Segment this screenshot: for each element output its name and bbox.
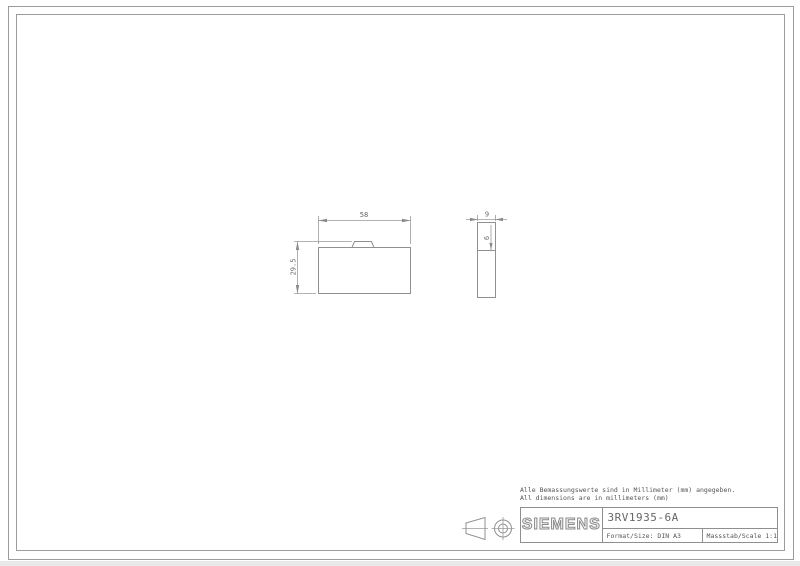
page-bottom-edge bbox=[0, 561, 800, 566]
side-step-dimension: 6 bbox=[483, 225, 493, 250]
title-block: SIEMENS 3RV1935-6A Format/Size: DIN A3 M… bbox=[520, 507, 778, 543]
outer-border-frame bbox=[9, 7, 794, 560]
part-number: 3RV1935-6A bbox=[603, 508, 777, 529]
circle-centerlines bbox=[492, 517, 515, 540]
front-height-dim-text: 29.5 bbox=[290, 259, 298, 276]
arrowhead-bottom bbox=[489, 243, 492, 250]
note-line-german: Alle Bemassungswerte sind in Millimeter … bbox=[520, 486, 735, 494]
front-view-tab-outline bbox=[352, 242, 374, 248]
arrowhead-left bbox=[319, 219, 328, 222]
side-width-dim-text: 9 bbox=[485, 211, 489, 219]
arrowhead-bottom bbox=[296, 285, 299, 294]
arrowhead-top bbox=[296, 242, 299, 251]
drawing-sheet: 58 29.5 9 6 bbox=[0, 0, 800, 566]
note-line-english: All dimensions are in millimeters (mm) bbox=[520, 494, 735, 502]
arrowhead-right bbox=[496, 218, 504, 221]
side-width-dimension: 9 bbox=[466, 211, 507, 222]
front-view bbox=[319, 242, 411, 294]
dimension-notes: Alle Bemassungswerte sind in Millimeter … bbox=[520, 486, 735, 502]
extension-lines bbox=[294, 242, 352, 294]
arrowhead-left bbox=[470, 218, 478, 221]
front-height-dimension: 29.5 bbox=[290, 242, 353, 294]
front-width-dim-text: 58 bbox=[360, 211, 368, 219]
scale-label: Massstab/Scale 1:1 bbox=[703, 529, 777, 542]
first-angle-projection-icon bbox=[462, 517, 515, 540]
side-view bbox=[478, 223, 496, 298]
format-size-label: Format/Size: DIN A3 bbox=[603, 529, 703, 542]
side-view-outline bbox=[478, 223, 496, 298]
front-width-dimension: 58 bbox=[319, 211, 411, 244]
title-block-right: 3RV1935-6A Format/Size: DIN A3 Massstab/… bbox=[603, 508, 777, 542]
title-block-bottom-row: Format/Size: DIN A3 Massstab/Scale 1:1 bbox=[603, 529, 777, 542]
side-step-dim-text: 6 bbox=[483, 236, 491, 240]
front-view-outline bbox=[319, 248, 411, 294]
arrowhead-right bbox=[402, 219, 411, 222]
inner-border-frame bbox=[17, 15, 785, 551]
brand-cell: SIEMENS bbox=[521, 508, 603, 542]
siemens-logo: SIEMENS bbox=[522, 516, 601, 534]
